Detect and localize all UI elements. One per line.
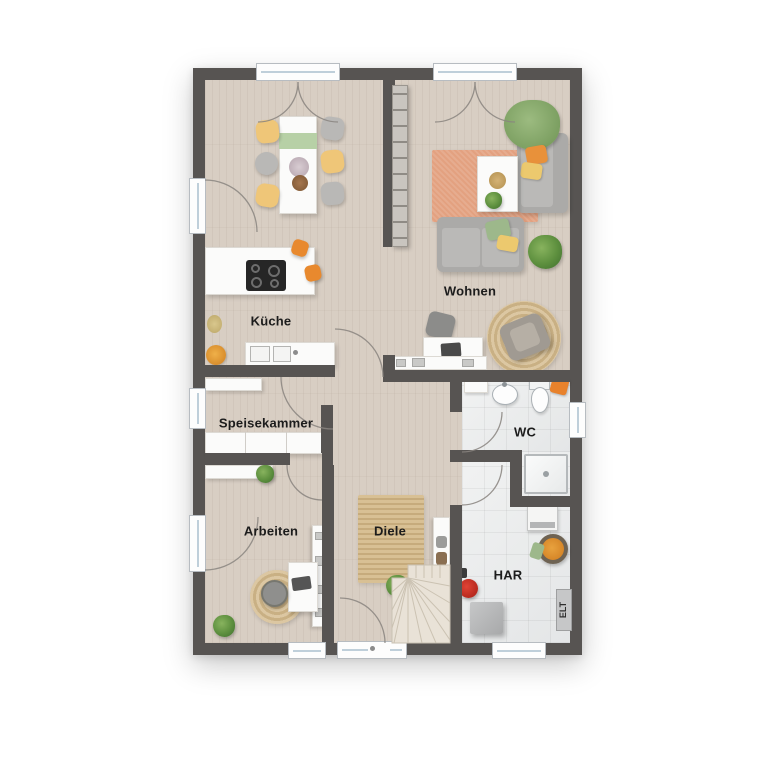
door-sidelight [342,649,368,651]
bag [436,536,447,548]
sink-faucet [502,382,507,387]
window-glass [197,393,199,424]
pantry-shelf-bottom [205,432,327,454]
window-glass [438,71,512,73]
office-plant [213,615,235,637]
room-label-diele: Diele [374,524,406,539]
door-handle [370,646,375,651]
burner [270,279,279,288]
room-label-kueche: Küche [251,314,292,329]
kitchen-window [256,63,340,81]
wc-cabinet [464,381,488,393]
faucet [293,350,298,355]
dining-chair [320,149,346,175]
shower-drain [543,471,549,477]
office-chair [261,580,288,607]
wall-office-east [322,465,334,643]
fruit-bowl [206,345,226,365]
wall-living-south [383,370,570,382]
dining-chair [255,119,280,144]
room-label-wohnen: Wohnen [444,284,496,299]
room-label-wc: WC [514,425,536,440]
burner [251,277,262,288]
wall-kitchen-south [205,365,335,377]
wc-sink [492,384,518,405]
wall-pantry-east [321,405,333,453]
sink-basin [273,346,291,362]
sofa-cushion [442,228,480,267]
kitchen-terrace-door [189,178,206,234]
washing-machine [470,602,503,634]
wall-har-west [450,505,462,643]
wall-wc-south [450,450,522,462]
shelf-divider [245,432,246,454]
dried-flowers [207,315,222,333]
green-throw [504,100,560,150]
table-runner [279,133,317,149]
living-plant [528,235,562,269]
pantry-shelf-top [205,378,262,391]
room-label-arbeiten: Arbeiten [244,524,298,539]
dining-chair [320,116,346,142]
hall-rug [358,495,424,583]
window-glass [261,71,335,73]
office-laptop [291,576,312,592]
sink-basin [250,346,270,362]
burner [251,264,260,273]
water-heater-detail [530,522,555,528]
wall-pantry-south [205,453,290,465]
table-tray [489,172,506,189]
panel-label-elt: ELT [558,602,568,618]
table-flowers [289,157,309,177]
table-bowl [292,175,308,191]
yellow-pillow [520,162,543,181]
wall-shower-south [510,496,570,507]
shelf-plant [256,465,274,483]
door-sidelight [390,649,402,651]
wall-wc-west [450,382,462,412]
burner [268,265,280,277]
office-window [288,642,326,659]
lowboard-item [396,359,406,367]
living-window [433,63,517,81]
wc-window [569,402,586,438]
wall-corner [322,453,333,465]
pantry-window [189,388,206,429]
lowboard-item [462,359,474,367]
bag [436,552,447,565]
window-glass [577,407,579,433]
table-plant [485,192,502,209]
window-glass [197,183,199,229]
office-terrace-door [189,515,206,572]
lowboard-item [412,358,425,367]
wall-shelf [392,85,408,247]
window-glass [497,650,541,652]
room-label-har: HAR [494,568,523,583]
har-window [492,642,546,659]
hall-plant [386,575,408,597]
window-glass [293,650,321,652]
floorplan-canvas: Küche Wohnen Speisekammer Arbeiten Diele… [0,0,775,775]
dining-chair [320,181,345,206]
room-label-speisekammer: Speisekammer [219,416,313,431]
shelf-divider [286,432,287,454]
window-glass [197,520,199,567]
